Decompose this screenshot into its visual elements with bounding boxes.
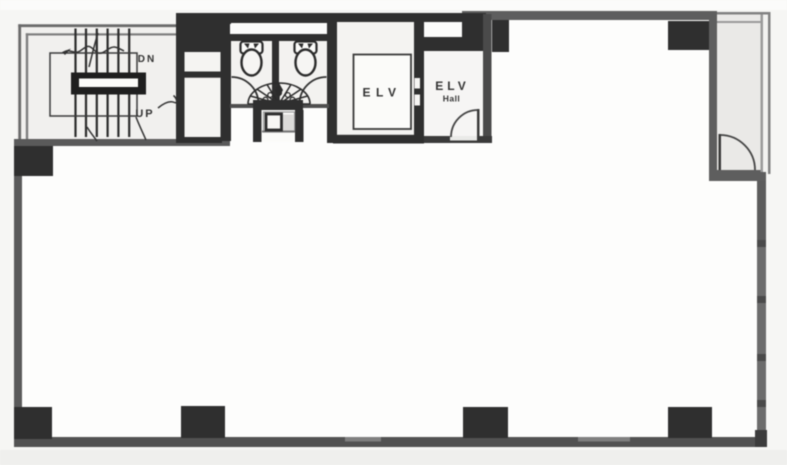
svg-text:Hall: Hall [443, 94, 461, 104]
svg-text:ELV: ELV [363, 86, 402, 100]
svg-text:DN: DN [138, 54, 156, 65]
svg-text:UP: UP [135, 108, 154, 120]
svg-text:ELV: ELV [435, 79, 469, 93]
